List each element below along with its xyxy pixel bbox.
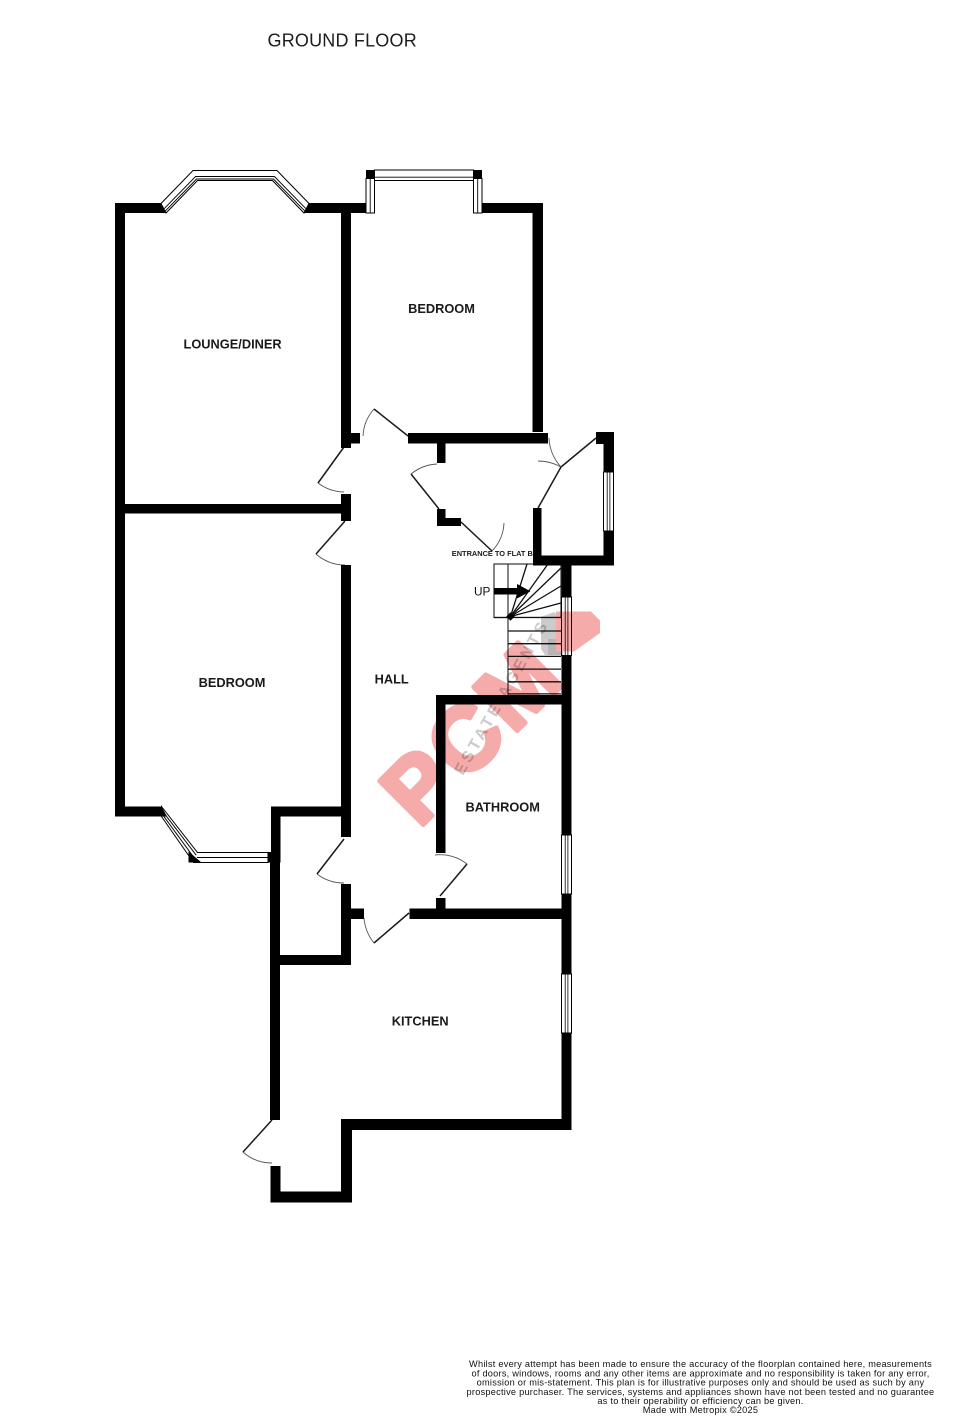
svg-text:GROUND FLOOR: GROUND FLOOR: [268, 31, 417, 51]
svg-text:LOUNGE/DINER: LOUNGE/DINER: [184, 336, 282, 351]
svg-text:UP: UP: [474, 585, 491, 599]
svg-text:BATHROOM: BATHROOM: [465, 799, 539, 814]
svg-text:Made with Metropix ©2025: Made with Metropix ©2025: [643, 1405, 758, 1415]
svg-text:BEDROOM: BEDROOM: [408, 301, 475, 316]
svg-text:ENTRANCE TO FLAT B: ENTRANCE TO FLAT B: [452, 549, 533, 558]
svg-text:KITCHEN: KITCHEN: [392, 1014, 449, 1029]
svg-text:HALL: HALL: [375, 671, 409, 686]
svg-text:BEDROOM: BEDROOM: [199, 675, 266, 690]
